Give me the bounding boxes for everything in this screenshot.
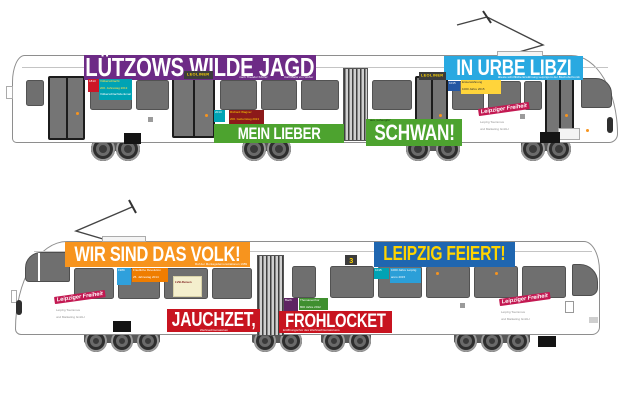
banner-text: SCHWAN!	[374, 120, 454, 146]
badge-text: 3	[349, 256, 353, 264]
window	[212, 268, 252, 299]
info-line: 800 Jahre 2012	[300, 306, 328, 309]
info-box-thomaner: Thomanerchor 800 Jahre 2012	[299, 298, 328, 310]
tag-text: 1813	[89, 80, 99, 83]
canvas: 1813 Völkerschlacht 200. Jahrestag 2013 …	[0, 0, 630, 400]
banner-note: aus „Lohengrin“	[370, 119, 391, 122]
stamp-subline: und Marketing GmbH	[56, 316, 113, 319]
year-tag-teal: 2013	[214, 110, 225, 122]
info-box-wagner: Richard Wagner 200. Geburtstag 2013	[229, 110, 264, 124]
stamp-subline: Leipzig Tourismus	[501, 311, 558, 314]
headlight-cluster	[607, 117, 613, 133]
door-button	[439, 114, 442, 117]
windshield-divider	[38, 253, 40, 281]
door-button	[565, 114, 568, 117]
banner-subtext: älteste schriftliche Erwähnung Leipzigs …	[498, 76, 580, 79]
banner-jauchzet: JAUCHZET, Weihnachtsoratorium	[167, 309, 260, 332]
banner-text: MEIN LIEBER	[238, 124, 321, 144]
banner-subtext: Eröffnungschor des Weihnachtsoratoriums	[283, 329, 340, 332]
banner-in-urbe-libzi: IN URBE LIBZI älteste schriftliche Erwäh…	[444, 56, 583, 80]
year-tag-blue: 1989	[117, 268, 131, 285]
banner-text: LEIPZIG FEIERT!	[383, 243, 505, 266]
info-box-yellow: Ersterwähnung 1000 Jahre 2015	[461, 80, 501, 94]
door-split	[193, 78, 195, 136]
info-box-teal: Völkerschlacht 200. Jahrestag 2013 Völke…	[99, 79, 132, 100]
equipment-box	[540, 132, 560, 143]
ad-box-cream: LVB-Reisen	[173, 276, 202, 297]
ad-text: LVB-Reisen	[175, 281, 201, 284]
badge-text: LEOLINER	[187, 73, 210, 77]
info-line: Thomanerchor	[300, 299, 328, 302]
window	[26, 80, 44, 106]
banner-schwan: SCHWAN! aus „Lohengrin“	[366, 119, 462, 146]
rear-detail	[589, 317, 598, 323]
tag-text: 1015	[375, 269, 389, 272]
door-split	[66, 78, 68, 138]
door-button	[436, 272, 439, 275]
body-detail	[520, 114, 525, 119]
banner-frohlocket: FROHLOCKET Eröffnungschor des Weihnachts…	[279, 311, 392, 333]
leoliner-badge: LEOLINER	[419, 72, 446, 80]
stamp-subtext: Leipzig Tourismus und Marketing GmbH	[480, 121, 537, 134]
windshield	[581, 78, 612, 108]
window	[261, 80, 297, 110]
info-line: 100. Jahrestag 2013	[100, 100, 132, 101]
info-line: Völkerschlachtdenkmal	[100, 93, 132, 96]
stamp-subtext: Leipzig Tourismus und Marketing GmbH	[501, 311, 558, 324]
info-line: anno 2015	[391, 276, 421, 279]
info-line: Ersterwähnung	[462, 81, 501, 84]
window	[426, 266, 470, 298]
year-tag-red: 1813	[88, 79, 99, 92]
stamp-subline: und Marketing GmbH	[480, 128, 537, 131]
door-button	[495, 272, 498, 275]
banner-subtext: Carl Maria von Weber	[284, 76, 313, 79]
tag-text: 1989	[118, 269, 131, 272]
body-detail	[148, 117, 153, 122]
year-tag-teal: 1015	[374, 268, 389, 279]
banner-wir-sind-das-volk: WIR SIND DAS VOLK! Ruf der Montagsdemons…	[65, 242, 250, 267]
window	[330, 266, 374, 298]
headlight-cluster	[16, 300, 22, 315]
banner-subtext: Ruf der Montagsdemonstrationen 1989	[195, 263, 247, 266]
window	[220, 80, 257, 110]
equipment-box	[113, 321, 131, 332]
info-line: 200. Jahrestag 2013	[100, 87, 132, 90]
tag-text: 1015	[449, 82, 460, 85]
equipment-box	[124, 133, 141, 144]
tag-text: Bach	[285, 299, 298, 302]
equipment-box	[538, 336, 556, 347]
info-line: Friedliche Revolution	[133, 269, 168, 272]
line-number-badge: 3	[345, 255, 357, 265]
info-line: Richard Wagner	[230, 111, 264, 114]
banner-leipzig-feiert: LEIPZIG FEIERT!	[374, 242, 515, 267]
banner-subtext: Weihnachtsoratorium	[199, 329, 227, 332]
door	[48, 76, 85, 140]
window	[474, 266, 518, 298]
window	[372, 80, 412, 110]
articulation-bellows	[343, 68, 368, 141]
windshield	[25, 252, 70, 282]
banner-subtext: nach Theodor Körner	[240, 76, 268, 79]
stamp-subline: und Marketing GmbH	[501, 318, 558, 321]
info-box-jahre: 1000 Jahre Leipzig anno 2015	[390, 268, 421, 283]
stamp-subline: Leipzig Tourismus	[56, 309, 113, 312]
door-button	[205, 114, 208, 117]
info-box-revolution: Friedliche Revolution 25. Jahrestag 2014	[132, 268, 168, 282]
info-line: Völkerschlacht	[100, 80, 132, 83]
window	[292, 266, 316, 298]
rear-mirror	[6, 86, 13, 99]
year-tag-blue: 1015	[448, 81, 460, 91]
info-line: 1000 Jahre 2015	[462, 88, 501, 91]
front-marker-light	[586, 129, 589, 132]
body-detail	[565, 301, 574, 313]
tag-text: 2013	[215, 111, 225, 114]
stamp-subtext: Leipzig Tourismus und Marketing GmbH	[56, 309, 113, 322]
tag-purple: Bach	[284, 298, 298, 311]
body-detail	[460, 303, 465, 308]
door-button	[76, 112, 79, 115]
badge-text: LEOLINER	[421, 74, 444, 78]
info-line: 1000 Jahre Leipzig	[391, 269, 421, 272]
window	[136, 80, 169, 110]
window	[301, 80, 339, 110]
banner-mein-lieber: MEIN LIEBER	[214, 124, 344, 143]
door	[172, 76, 215, 138]
pantograph-head	[483, 11, 491, 23]
info-line: 200. Geburtstag 2013	[230, 118, 264, 121]
stamp-subline: Leipzig Tourismus	[480, 121, 537, 124]
pantograph-head	[129, 200, 136, 213]
front-skirt-panel	[558, 128, 580, 140]
info-line: 25. Jahrestag 2014	[133, 276, 168, 279]
leoliner-badge: LEOLINER	[184, 71, 213, 79]
